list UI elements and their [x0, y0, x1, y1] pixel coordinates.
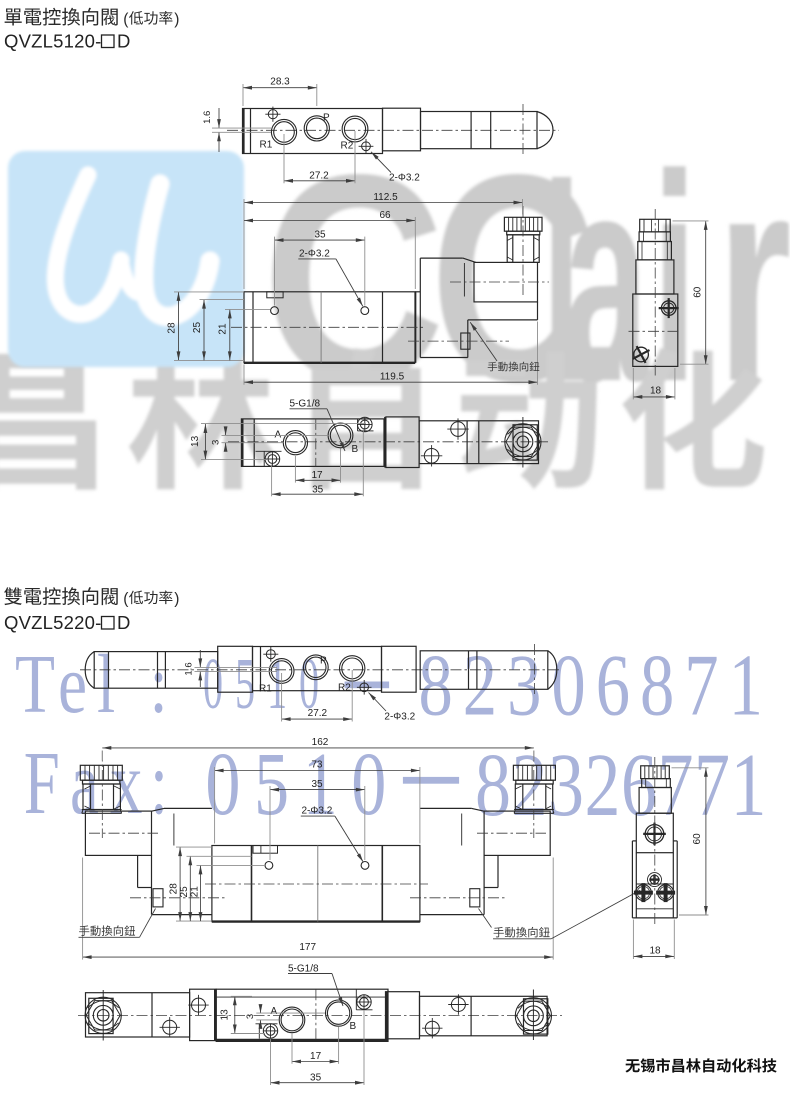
svg-text:): ) [174, 11, 179, 28]
svg-text:): ) [174, 591, 179, 608]
svg-text:66: 66 [379, 210, 391, 221]
svg-text:R2: R2 [341, 141, 354, 152]
svg-text:2-Φ3.2: 2-Φ3.2 [299, 248, 330, 259]
svg-text:(: ( [123, 591, 129, 608]
svg-text:R1: R1 [259, 684, 272, 695]
svg-text:1: 1 [729, 638, 763, 735]
svg-text:T: T [15, 638, 55, 731]
svg-text:28: 28 [167, 322, 178, 334]
svg-text:QVZL5220-: QVZL5220- [4, 612, 101, 633]
svg-text:17: 17 [310, 1051, 322, 1062]
svg-text:0: 0 [551, 638, 585, 735]
svg-text:8: 8 [419, 638, 453, 735]
svg-text:27.2: 27.2 [308, 708, 328, 719]
svg-text:177: 177 [299, 942, 316, 953]
svg-text:6: 6 [596, 638, 630, 735]
svg-text:18: 18 [649, 945, 661, 956]
svg-text:a: a [70, 733, 99, 833]
svg-text:35: 35 [311, 779, 323, 790]
svg-text:P: P [323, 113, 330, 124]
svg-text:73: 73 [311, 760, 323, 771]
svg-text:R1: R1 [260, 139, 273, 150]
svg-text:13: 13 [219, 1009, 230, 1021]
svg-text:A: A [271, 1006, 278, 1017]
svg-text:3: 3 [245, 1014, 256, 1019]
svg-text:1.6: 1.6 [202, 111, 213, 124]
svg-text:162: 162 [312, 737, 329, 748]
svg-text:2-Φ3.2: 2-Φ3.2 [302, 805, 333, 816]
svg-text:8: 8 [475, 734, 511, 834]
svg-text:21: 21 [218, 323, 229, 335]
svg-text:3: 3 [210, 440, 221, 445]
svg-text:D: D [117, 31, 130, 52]
svg-text:0: 0 [205, 735, 240, 834]
svg-text:2: 2 [512, 734, 548, 834]
svg-text:60: 60 [692, 833, 703, 845]
svg-text:2-Φ3.2: 2-Φ3.2 [389, 172, 420, 183]
svg-text:2: 2 [585, 734, 621, 834]
svg-text:2-Φ3.2: 2-Φ3.2 [384, 711, 415, 722]
svg-text:7: 7 [658, 734, 694, 834]
svg-text:35: 35 [312, 484, 324, 495]
svg-text:27.2: 27.2 [309, 170, 329, 181]
svg-text:35: 35 [314, 229, 326, 240]
svg-text:35: 35 [310, 1072, 322, 1083]
svg-text:5-G1/8: 5-G1/8 [288, 963, 319, 974]
svg-text:0: 0 [351, 735, 386, 834]
svg-text:13: 13 [190, 435, 201, 447]
svg-text:112.5: 112.5 [373, 192, 398, 203]
svg-text:25: 25 [179, 886, 190, 898]
svg-text:F: F [24, 733, 60, 833]
svg-text:QVZL5120-: QVZL5120- [4, 31, 101, 52]
svg-text:P: P [320, 656, 327, 667]
svg-text:l: l [97, 638, 115, 731]
svg-text:119.5: 119.5 [380, 371, 405, 382]
svg-text:21: 21 [189, 886, 200, 898]
svg-text:28: 28 [169, 883, 180, 895]
svg-text:8: 8 [640, 638, 674, 735]
svg-text:7: 7 [684, 638, 718, 735]
svg-text:D: D [117, 612, 130, 633]
svg-text:5-G1/8: 5-G1/8 [290, 399, 321, 410]
svg-text:3: 3 [507, 638, 541, 735]
svg-text:1.6: 1.6 [184, 662, 195, 675]
svg-text:18: 18 [650, 385, 662, 396]
svg-text:0: 0 [203, 644, 223, 725]
svg-text:7: 7 [694, 734, 730, 834]
svg-text:1: 1 [731, 734, 767, 834]
svg-text:5: 5 [254, 735, 289, 834]
svg-text:28.3: 28.3 [270, 76, 290, 87]
svg-text:A: A [275, 429, 282, 440]
svg-text:25: 25 [192, 322, 203, 334]
svg-text:17: 17 [311, 470, 323, 481]
svg-text:B: B [352, 444, 359, 455]
svg-text:(: ( [123, 11, 129, 28]
svg-text:R2: R2 [338, 683, 351, 694]
svg-text:6: 6 [621, 734, 657, 834]
svg-text:B: B [350, 1021, 357, 1032]
svg-text:e: e [58, 638, 87, 731]
svg-text:60: 60 [693, 286, 704, 298]
svg-text:3: 3 [548, 734, 584, 834]
